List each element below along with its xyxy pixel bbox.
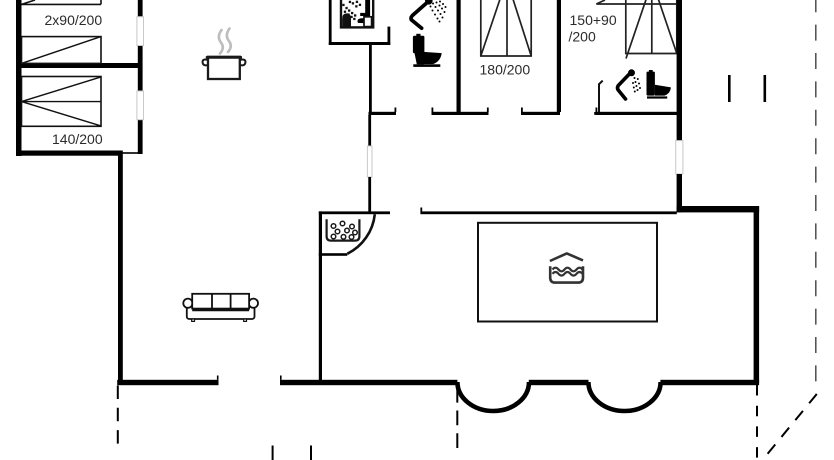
svg-text:2x90/200: 2x90/200	[45, 12, 103, 28]
svg-text:180/200: 180/200	[480, 61, 531, 77]
svg-text:150+90: 150+90	[570, 12, 617, 28]
svg-text:140/200: 140/200	[52, 131, 103, 147]
svg-text:/200: /200	[569, 29, 596, 45]
